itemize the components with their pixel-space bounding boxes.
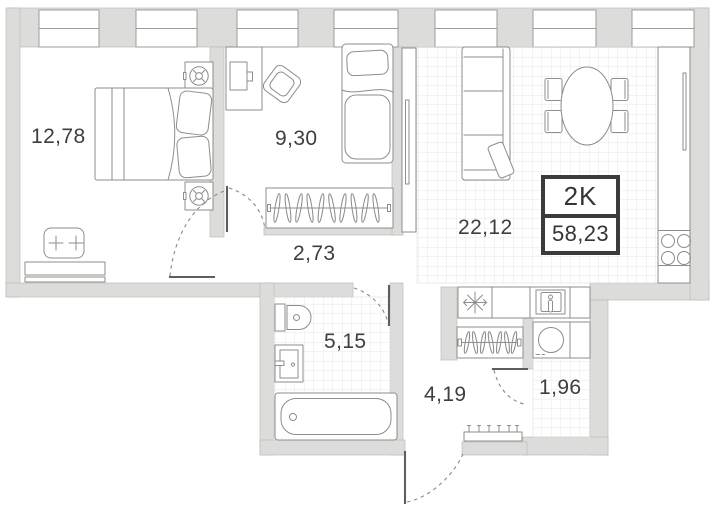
bedroom-rug	[44, 228, 84, 258]
bathtub	[275, 393, 397, 440]
floor-plan-drawing	[0, 0, 717, 511]
unit-total-area: 58,23	[545, 218, 616, 251]
tall-cabinet	[402, 48, 416, 232]
wardrobe-hangers	[266, 188, 393, 228]
nightstand-lamp	[184, 62, 214, 90]
coat-rack-hangers	[457, 327, 523, 358]
kitchen-counter-right	[658, 47, 691, 283]
unit-type-label: 2K	[545, 179, 616, 218]
windows	[39, 10, 694, 47]
room-label-living-kitchen: 22,12	[458, 217, 513, 238]
window	[334, 10, 398, 47]
kitchen-counter-bottom	[458, 287, 590, 318]
bathroom-sink	[275, 345, 303, 382]
room-label-entry-hall: 4,19	[424, 384, 466, 405]
double-bed	[95, 88, 213, 180]
room-label-inner-hallway: 2,73	[293, 243, 335, 264]
chair	[545, 111, 562, 133]
dresser	[25, 262, 105, 282]
sofa	[462, 47, 515, 180]
window	[435, 10, 497, 47]
room-label-storage: 1,96	[539, 377, 581, 398]
chair	[611, 79, 628, 101]
unit-summary-badge: 2K 58,23	[541, 175, 620, 255]
floor-plan: 12,78 9,30 2,73 22,12 5,15 4,19 1,96 2K …	[0, 0, 717, 511]
nightstand-lamp	[184, 182, 214, 210]
window	[533, 10, 596, 47]
chair	[545, 79, 562, 101]
window	[136, 10, 197, 47]
chair	[611, 111, 628, 133]
desk	[226, 47, 262, 110]
washing-machine	[533, 322, 590, 358]
shoe-rack	[464, 426, 522, 442]
window	[39, 10, 99, 47]
single-bed	[342, 44, 393, 163]
room-label-bedroom: 12,78	[31, 126, 86, 147]
room-label-child-room: 9,30	[275, 128, 317, 149]
entry-door	[405, 452, 463, 503]
child-room-door	[227, 187, 265, 231]
desk-chair	[261, 63, 303, 105]
room-label-bathroom: 5,15	[324, 331, 366, 352]
window	[632, 10, 694, 47]
window	[237, 10, 298, 47]
storage-door	[493, 369, 527, 404]
toilet	[275, 304, 311, 331]
